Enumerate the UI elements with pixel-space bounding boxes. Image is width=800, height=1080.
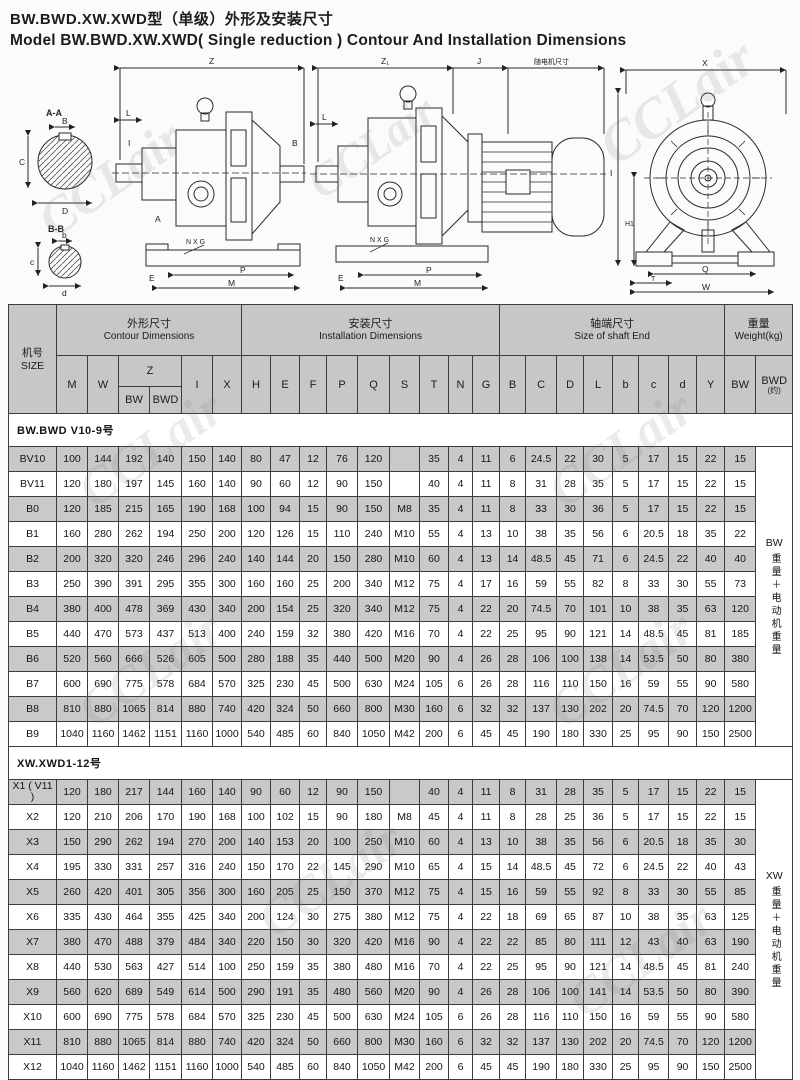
value-cell: 90: [327, 805, 358, 830]
value-cell: 80: [697, 980, 725, 1005]
value-cell: 4: [449, 930, 473, 955]
value-cell: 100: [57, 447, 88, 472]
size-cell: X8: [9, 955, 57, 980]
value-cell: 12: [300, 472, 327, 497]
value-cell: 43: [639, 930, 669, 955]
value-cell: 420: [358, 622, 390, 647]
value-cell: 775: [119, 1005, 150, 1030]
size-cell: B7: [9, 672, 57, 697]
value-cell: 4: [449, 980, 473, 1005]
value-cell: 4: [449, 522, 473, 547]
column-header-BW: BW: [725, 356, 756, 414]
value-cell: 880: [88, 1030, 119, 1055]
value-cell: 20: [300, 830, 327, 855]
table-row: X633543046435542534020012430275380M12754…: [9, 905, 793, 930]
value-cell: 76: [327, 447, 358, 472]
value-cell: 35: [557, 830, 584, 855]
value-cell: 55: [697, 572, 725, 597]
value-cell: 154: [271, 597, 300, 622]
column-header-L: L: [584, 356, 613, 414]
table-row: X844053056342751410025015935380480M16704…: [9, 955, 793, 980]
column-header-BWD: BWD(约): [756, 356, 793, 414]
dim-label: Z: [209, 56, 214, 66]
value-cell: 740: [213, 1030, 242, 1055]
value-cell: 80: [557, 930, 584, 955]
column-header-b: b: [613, 356, 639, 414]
value-cell: 262: [119, 830, 150, 855]
value-cell: 340: [213, 905, 242, 930]
value-cell: 330: [88, 855, 119, 880]
value-cell: M16: [390, 930, 420, 955]
value-cell: 160: [57, 522, 88, 547]
size-cell: X2: [9, 805, 57, 830]
value-cell: 526: [150, 647, 182, 672]
value-cell: 80: [242, 447, 271, 472]
value-cell: 20.5: [639, 830, 669, 855]
value-cell: 90: [242, 780, 271, 805]
value-cell: 8: [613, 572, 639, 597]
value-cell: M30: [390, 1030, 420, 1055]
value-cell: 270: [182, 830, 213, 855]
value-cell: 90: [697, 1005, 725, 1030]
value-cell: 87: [584, 905, 613, 930]
value-cell: 38: [526, 522, 557, 547]
value-cell: 15: [669, 497, 697, 522]
value-cell: 95: [639, 722, 669, 747]
value-cell: 513: [182, 622, 213, 647]
value-cell: 55: [697, 880, 725, 905]
value-cell: 75: [420, 572, 449, 597]
value-cell: M30: [390, 697, 420, 722]
value-cell: 90: [669, 1055, 697, 1080]
value-cell: 25: [557, 805, 584, 830]
value-cell: 95: [639, 1055, 669, 1080]
value-cell: 20: [500, 597, 526, 622]
value-cell: 59: [639, 672, 669, 697]
value-cell: 150: [358, 780, 390, 805]
value-cell: 420: [242, 1030, 271, 1055]
value-cell: 480: [358, 955, 390, 980]
value-cell: 4: [449, 472, 473, 497]
value-cell: 295: [150, 572, 182, 597]
value-cell: 485: [271, 722, 300, 747]
value-cell: 45: [300, 1005, 327, 1030]
size-cell: X5: [9, 880, 57, 905]
value-cell: 190: [725, 930, 756, 955]
value-cell: 124: [271, 905, 300, 930]
value-cell: 13: [473, 547, 500, 572]
value-cell: 190: [526, 722, 557, 747]
value-cell: 120: [57, 780, 88, 805]
value-cell: 90: [327, 780, 358, 805]
value-cell: 340: [358, 572, 390, 597]
value-cell: 1000: [213, 722, 242, 747]
value-cell: 200: [213, 830, 242, 855]
value-cell: 153: [271, 830, 300, 855]
dim-label: I: [128, 138, 130, 148]
value-cell: 48.5: [639, 622, 669, 647]
value-cell: 40: [420, 780, 449, 805]
value-cell: 470: [88, 622, 119, 647]
value-cell: 10: [500, 830, 526, 855]
value-cell: 35: [697, 830, 725, 855]
value-cell: 1160: [182, 722, 213, 747]
value-cell: 316: [182, 855, 213, 880]
value-cell: 331: [119, 855, 150, 880]
value-cell: 150: [182, 447, 213, 472]
size-cell: X12: [9, 1055, 57, 1080]
table-row: X956062068954961450029019135480560M20904…: [9, 980, 793, 1005]
column-header-B: B: [500, 356, 526, 414]
value-cell: 325: [242, 1005, 271, 1030]
value-cell: 22: [725, 522, 756, 547]
value-cell: 106: [526, 980, 557, 1005]
value-cell: 540: [242, 1055, 271, 1080]
dim-label: N X G: [370, 237, 389, 244]
value-cell: 4: [449, 497, 473, 522]
value-cell: M12: [390, 597, 420, 622]
value-cell: 4: [449, 830, 473, 855]
value-cell: 160: [242, 572, 271, 597]
document-page: BW.BWD.XW.XWD型（单级）外形及安装尺寸 Model BW.BWD.X…: [0, 0, 800, 1054]
value-cell: 1462: [119, 1055, 150, 1080]
value-cell: 63: [697, 905, 725, 930]
value-cell: 18: [669, 522, 697, 547]
value-cell: 15: [669, 780, 697, 805]
value-cell: 325: [242, 672, 271, 697]
value-cell: 45: [473, 1055, 500, 1080]
value-cell: 116: [526, 1005, 557, 1030]
column-header-P: P: [327, 356, 358, 414]
value-cell: 168: [213, 805, 242, 830]
value-cell: 630: [358, 672, 390, 697]
value-cell: 170: [150, 805, 182, 830]
value-cell: 22: [697, 447, 725, 472]
value-cell: 840: [327, 722, 358, 747]
size-cell: B6: [9, 647, 57, 672]
value-cell: 488: [119, 930, 150, 955]
value-cell: [390, 780, 420, 805]
column-group-header: 安装尺寸Installation Dimensions: [242, 305, 500, 356]
value-cell: 35: [669, 597, 697, 622]
value-cell: 35: [300, 647, 327, 672]
value-cell: 145: [150, 472, 182, 497]
value-cell: M12: [390, 572, 420, 597]
value-cell: 600: [57, 672, 88, 697]
value-cell: 17: [639, 447, 669, 472]
value-cell: 810: [57, 697, 88, 722]
header-row-letters: MWZIXHEFPQSTNGBCDLbcdYBWBWD(约): [9, 356, 793, 387]
value-cell: 48.5: [526, 547, 557, 572]
value-cell: 280: [242, 647, 271, 672]
value-cell: 814: [150, 697, 182, 722]
column-header-Y: Y: [697, 356, 725, 414]
value-cell: 22: [473, 597, 500, 622]
dim-label: P: [240, 265, 246, 275]
value-cell: 95: [526, 955, 557, 980]
weight-note-head: XW: [756, 870, 792, 882]
value-cell: 35: [669, 905, 697, 930]
value-cell: 45: [557, 547, 584, 572]
value-cell: 22: [473, 622, 500, 647]
value-cell: 420: [242, 697, 271, 722]
column-header-H: H: [242, 356, 271, 414]
value-cell: 150: [358, 472, 390, 497]
value-cell: 22: [557, 447, 584, 472]
value-cell: 32: [500, 697, 526, 722]
value-cell: 8: [500, 497, 526, 522]
value-cell: 210: [88, 805, 119, 830]
size-cell: B0: [9, 497, 57, 522]
value-cell: 70: [669, 697, 697, 722]
value-cell: 4: [449, 905, 473, 930]
section-title: BW.BWD V10-9号: [9, 414, 793, 447]
value-cell: 240: [213, 855, 242, 880]
value-cell: 484: [182, 930, 213, 955]
value-cell: 90: [697, 672, 725, 697]
value-cell: 116: [526, 672, 557, 697]
value-cell: 573: [119, 622, 150, 647]
value-cell: 15: [300, 522, 327, 547]
value-cell: 605: [182, 647, 213, 672]
value-cell: 6: [449, 672, 473, 697]
value-cell: 437: [150, 622, 182, 647]
value-cell: M10: [390, 547, 420, 572]
value-cell: 1462: [119, 722, 150, 747]
motor-view-drawing: Z₁ J 随电机尺寸: [308, 54, 608, 298]
value-cell: 90: [420, 647, 449, 672]
value-cell: 144: [150, 780, 182, 805]
value-cell: 121: [584, 955, 613, 980]
value-cell: 185: [725, 622, 756, 647]
value-cell: 614: [182, 980, 213, 1005]
size-cell: B9: [9, 722, 57, 747]
side-view-drawing: A-A B C D B-B b c d: [8, 54, 308, 298]
value-cell: M42: [390, 1055, 420, 1080]
size-cell: B1: [9, 522, 57, 547]
value-cell: 4: [449, 647, 473, 672]
value-cell: 630: [358, 1005, 390, 1030]
value-cell: 570: [213, 1005, 242, 1030]
dim-label: N X G: [186, 239, 205, 246]
dim-label: H1: [625, 221, 634, 228]
value-cell: 192: [119, 447, 150, 472]
value-cell: 55: [420, 522, 449, 547]
value-cell: 440: [57, 622, 88, 647]
value-cell: 4: [449, 547, 473, 572]
value-cell: 16: [613, 1005, 639, 1030]
value-cell: 38: [526, 830, 557, 855]
value-cell: 340: [213, 930, 242, 955]
value-cell: 15: [669, 805, 697, 830]
table-row: B910401160146211511160100054048560840105…: [9, 722, 793, 747]
value-cell: 190: [182, 497, 213, 522]
value-cell: 330: [584, 1055, 613, 1080]
value-cell: 120: [242, 522, 271, 547]
value-cell: 320: [119, 547, 150, 572]
column-header-D: D: [557, 356, 584, 414]
value-cell: 330: [584, 722, 613, 747]
value-cell: 35: [300, 955, 327, 980]
value-cell: 144: [271, 547, 300, 572]
value-cell: 110: [557, 672, 584, 697]
value-cell: 74.5: [639, 1030, 669, 1055]
value-cell: 140: [213, 780, 242, 805]
value-cell: 150: [584, 1005, 613, 1030]
value-cell: 380: [327, 622, 358, 647]
value-cell: 250: [242, 955, 271, 980]
value-cell: 5: [613, 780, 639, 805]
value-cell: 380: [57, 930, 88, 955]
value-cell: 202: [584, 697, 613, 722]
value-cell: M12: [390, 880, 420, 905]
table-row: X526042040130535630016020525150370M12754…: [9, 880, 793, 905]
table-row: B438040047836943034020015425320340M12754…: [9, 597, 793, 622]
column-header-c: c: [639, 356, 669, 414]
column-header-T: T: [420, 356, 449, 414]
dim-label: T: [651, 276, 656, 283]
value-cell: 26: [473, 1005, 500, 1030]
weight-note-head: BW: [756, 537, 792, 549]
value-cell: 188: [271, 647, 300, 672]
value-cell: 140: [242, 547, 271, 572]
value-cell: 355: [150, 905, 182, 930]
value-cell: 20: [613, 1030, 639, 1055]
value-cell: 1040: [57, 722, 88, 747]
value-cell: 684: [182, 1005, 213, 1030]
value-cell: 32: [300, 622, 327, 647]
value-cell: 75: [420, 880, 449, 905]
value-cell: 250: [358, 830, 390, 855]
value-cell: 194: [150, 830, 182, 855]
value-cell: 121: [584, 622, 613, 647]
value-cell: 180: [88, 472, 119, 497]
dimension-table: 机号SIZE外形尺寸Contour Dimensions安装尺寸Installa…: [8, 304, 793, 1080]
value-cell: 45: [500, 1055, 526, 1080]
value-cell: 150: [327, 880, 358, 905]
value-cell: 15: [669, 472, 697, 497]
value-cell: 5: [613, 497, 639, 522]
value-cell: 25: [300, 572, 327, 597]
value-cell: 24.5: [639, 547, 669, 572]
value-cell: 145: [327, 855, 358, 880]
technical-drawings: A-A B C D B-B b c d: [8, 54, 792, 298]
value-cell: 180: [358, 805, 390, 830]
value-cell: 8: [500, 805, 526, 830]
value-cell: 25: [613, 722, 639, 747]
value-cell: 880: [182, 1030, 213, 1055]
dim-label: X: [702, 58, 708, 68]
value-cell: 100: [213, 955, 242, 980]
size-cell: X9: [9, 980, 57, 1005]
value-cell: 15: [300, 497, 327, 522]
value-cell: 45: [557, 855, 584, 880]
column-header-Q: Q: [358, 356, 390, 414]
dim-label: B: [62, 116, 68, 126]
value-cell: 60: [300, 1055, 327, 1080]
value-cell: 260: [57, 880, 88, 905]
value-cell: 340: [213, 597, 242, 622]
value-cell: 324: [271, 697, 300, 722]
section-title: XW.XWD1-12号: [9, 747, 793, 780]
value-cell: 800: [358, 1030, 390, 1055]
value-cell: 180: [88, 780, 119, 805]
value-cell: 480: [327, 980, 358, 1005]
value-cell: M10: [390, 522, 420, 547]
value-cell: 26: [473, 672, 500, 697]
value-cell: 28: [500, 672, 526, 697]
value-cell: 391: [119, 572, 150, 597]
value-cell: 65: [420, 855, 449, 880]
value-cell: 85: [526, 930, 557, 955]
value-cell: 570: [213, 672, 242, 697]
value-cell: 92: [584, 880, 613, 905]
value-cell: 206: [119, 805, 150, 830]
value-cell: 500: [327, 672, 358, 697]
value-cell: 240: [213, 547, 242, 572]
value-cell: 8: [500, 472, 526, 497]
value-cell: 120: [57, 805, 88, 830]
value-cell: 689: [119, 980, 150, 1005]
value-cell: 38: [639, 905, 669, 930]
dim-label: J: [477, 56, 481, 66]
value-cell: 1200: [725, 697, 756, 722]
value-cell: 20: [300, 547, 327, 572]
value-cell: 217: [119, 780, 150, 805]
value-cell: 141: [584, 980, 613, 1005]
value-cell: 100: [557, 647, 584, 672]
value-cell: 200: [327, 572, 358, 597]
value-cell: 400: [88, 597, 119, 622]
value-cell: 70: [557, 597, 584, 622]
value-cell: 15: [669, 447, 697, 472]
size-cell: X3: [9, 830, 57, 855]
dim-label: b: [62, 230, 67, 240]
size-cell: X7: [9, 930, 57, 955]
value-cell: 15: [473, 880, 500, 905]
value-cell: M8: [390, 805, 420, 830]
value-cell: 12: [300, 447, 327, 472]
value-cell: 90: [557, 622, 584, 647]
value-cell: 800: [358, 697, 390, 722]
weight-note-cell: XW重量＋电动机重量: [756, 780, 793, 1080]
value-cell: 80: [697, 647, 725, 672]
dim-label: P: [426, 265, 432, 275]
value-cell: 22: [697, 472, 725, 497]
value-cell: 150: [697, 722, 725, 747]
motor-size-note: 随电机尺寸: [534, 57, 569, 66]
value-cell: 305: [150, 880, 182, 905]
value-cell: 22: [473, 905, 500, 930]
weight-note-body: 重量＋电动机重量: [768, 553, 780, 657]
value-cell: 125: [725, 905, 756, 930]
column-header-G: G: [473, 356, 500, 414]
value-cell: 275: [327, 905, 358, 930]
value-cell: 28: [500, 980, 526, 1005]
value-cell: 195: [57, 855, 88, 880]
value-cell: 563: [119, 955, 150, 980]
section-aa-label: A-A: [46, 108, 62, 118]
value-cell: 28: [557, 472, 584, 497]
value-cell: 11: [473, 780, 500, 805]
value-cell: 6: [449, 1055, 473, 1080]
value-cell: 400: [213, 622, 242, 647]
value-cell: M20: [390, 980, 420, 1005]
value-cell: 250: [57, 572, 88, 597]
value-cell: 22: [697, 805, 725, 830]
value-cell: 390: [88, 572, 119, 597]
table-row: B760069077557868457032523045500630M24105…: [9, 672, 793, 697]
